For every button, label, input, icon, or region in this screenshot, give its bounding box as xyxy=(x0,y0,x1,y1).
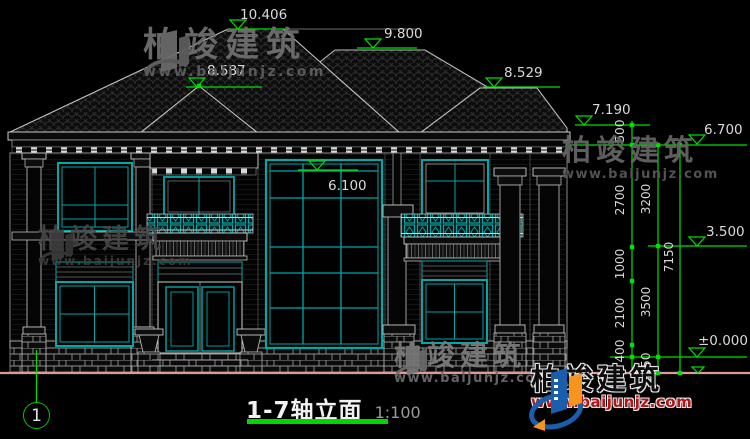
shutterbox-left-1f xyxy=(56,262,133,282)
elevation-label-6700: 6.700 xyxy=(704,122,743,138)
elevation-label-6100: 6.100 xyxy=(328,178,367,194)
chain-dimension-labels: 500 2700 1000 2100 400 3200 3500 450 715… xyxy=(613,120,676,376)
dim-3500: 3500 xyxy=(639,287,653,318)
brand-logo-icon xyxy=(529,365,589,433)
window-entrance-2f xyxy=(164,177,234,216)
window-left-1f xyxy=(56,282,133,346)
window-left-2f xyxy=(58,163,132,231)
dim-3200: 3200 xyxy=(639,184,653,215)
elevation-label-porch-ridge: 8.587 xyxy=(207,63,246,79)
axis-bubble-1: 1 xyxy=(23,402,50,429)
title-underline xyxy=(247,419,388,424)
dim-400: 400 xyxy=(613,340,627,363)
brand-logo-block: 柏竣建筑 www.baijunjz.com xyxy=(529,365,692,410)
elevation-label-ridge-right: 9.800 xyxy=(384,26,423,42)
porch-entablature xyxy=(150,153,258,175)
balcony-center-slab xyxy=(153,233,247,260)
dim-2100: 2100 xyxy=(613,298,627,329)
dim-1000: 1000 xyxy=(613,249,627,280)
elevation-label-3500: 3.500 xyxy=(706,224,745,240)
elevation-label-ridge-right-low: 8.529 xyxy=(504,65,543,81)
entrance-door xyxy=(158,282,242,353)
door-transom xyxy=(158,262,242,282)
axis-bubble-number: 1 xyxy=(31,406,42,426)
window-right-2f xyxy=(422,160,488,217)
dim-500: 500 xyxy=(613,120,627,143)
eave-cornice xyxy=(8,132,570,153)
building xyxy=(8,29,570,372)
shutterbox-right-1f xyxy=(422,261,487,280)
cad-elevation-drawing: 10.406 9.800 8.587 8.529 7.190 6.700 6.1… xyxy=(0,0,750,439)
balcony-right-slab xyxy=(404,237,506,261)
band-left xyxy=(12,232,158,240)
balcony-center-railing xyxy=(147,214,253,233)
window-right-1f xyxy=(422,280,487,343)
elevation-label-zero: ±0.000 xyxy=(698,333,748,349)
elevation-label-eave: 7.190 xyxy=(592,102,631,118)
dim-7150: 7150 xyxy=(662,242,676,273)
elevation-label-ridge-main: 10.406 xyxy=(240,7,287,23)
dim-2700: 2700 xyxy=(613,185,627,216)
